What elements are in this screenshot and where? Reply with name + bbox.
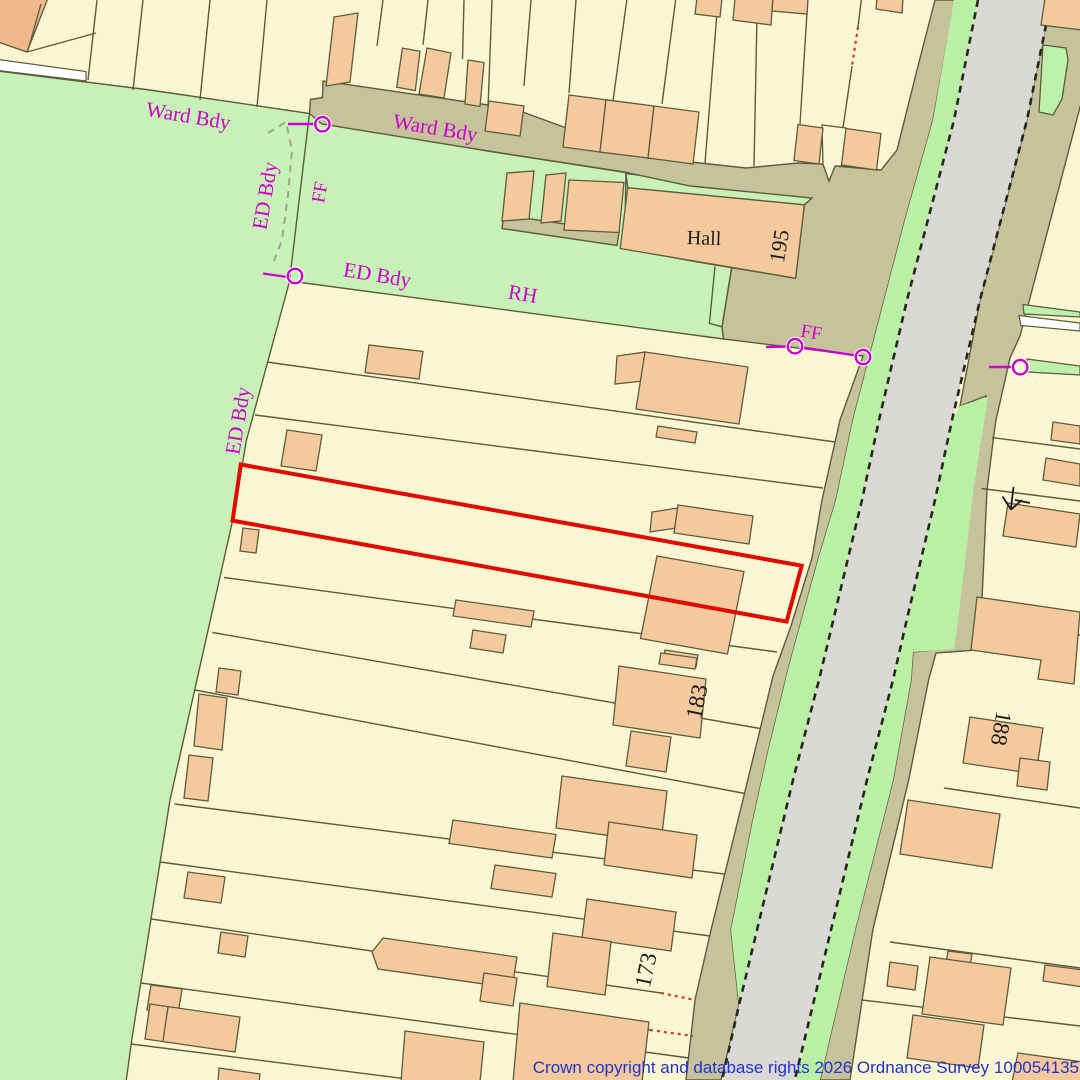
svg-text:Hall: Hall: [686, 227, 722, 250]
svg-text:RH: RH: [506, 280, 539, 308]
svg-text:FF: FF: [799, 321, 823, 345]
svg-text:Crown copyright and database r: Crown copyright and database rights 2026…: [533, 1058, 1079, 1077]
svg-text:FF: FF: [308, 180, 332, 204]
